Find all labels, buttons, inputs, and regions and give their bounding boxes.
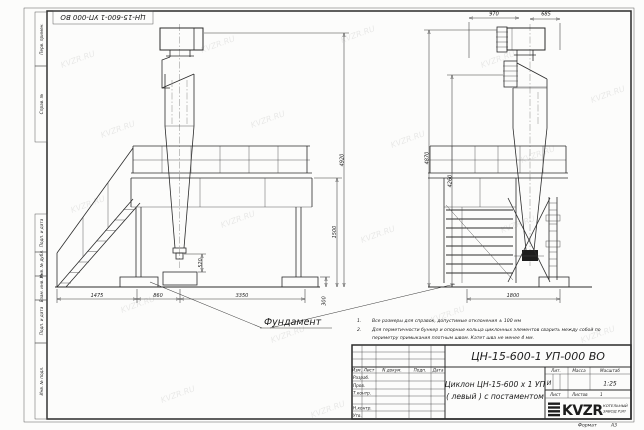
header-izm: Изм. — [352, 368, 362, 373]
top-doc-number-text: ЦН-15-600-1 УП-000 ВО — [60, 13, 146, 21]
dim-1475-label: 1475 — [91, 293, 104, 299]
dim-1500-label: 1500 — [332, 226, 338, 239]
dim-1800-label: 1800 — [507, 293, 520, 299]
header-massa: Масса — [572, 368, 586, 373]
dim-4870-label: 4870 — [425, 152, 431, 165]
header-lit: Лит. — [550, 368, 561, 373]
format-note: Формат А3 — [578, 423, 617, 429]
title-block: Изм. Лист N докум. Подп. Дата Разраб. Пр… — [352, 345, 631, 419]
cyclone-side-view — [428, 24, 592, 287]
margin-label-sprav: Справ. № — [39, 93, 44, 114]
notes-block: 1. Все размеры для справок, допустимые о… — [357, 318, 601, 341]
logo-sub-1: КОТЕЛЬНЫЙ — [603, 403, 628, 408]
margin-label-podp-data-1: Подп. и дата — [39, 218, 44, 247]
format-label: Формат — [578, 423, 597, 429]
row-tkontr: Т.контр. — [353, 391, 371, 396]
title-name-line1: Циклон ЦН-15-600 х 1 УП — [445, 380, 546, 389]
dim-300-label: 300 — [322, 296, 328, 306]
dim-3350-label: 3350 — [236, 293, 249, 299]
margin-label-vzam-inv: Взам. инв. № — [39, 273, 44, 302]
margin-stamp-column: Перв. примен. Справ. № Подп. и дата Инв.… — [35, 12, 47, 419]
margin-label-perv-primen: Перв. примен. — [39, 23, 44, 54]
row-prov: Пров. — [353, 383, 365, 388]
dim-860-label: 860 — [153, 293, 163, 299]
title-doc-number: ЦН-15-600-1 УП-000 ВО — [471, 350, 605, 363]
header-list2: Лист — [549, 392, 561, 397]
note-1-text: Все размеры для справок, допустимые откл… — [372, 318, 522, 324]
logo-text: KVZR — [562, 403, 603, 419]
margin-label-inv-podl: Инв. № подл. — [39, 367, 44, 396]
note-1-number: 1. — [357, 318, 361, 324]
header-list: Лист — [363, 368, 375, 373]
format-value: А3 — [610, 423, 617, 429]
lit-value: И — [547, 380, 552, 387]
dimension-lines: 1475 860 3350 520 4920 1500 300 4870 426… — [57, 12, 560, 306]
dim-520-label: 520 — [198, 258, 204, 268]
header-listov: Листов — [571, 392, 588, 397]
note-2-text-cont: периметру примыкания плотным швом. Катет… — [372, 335, 534, 341]
drawing-canvas: Перв. примен. Справ. № Подп. и дата Инв.… — [0, 0, 644, 430]
margin-label-podp-data-2: Подп. и дата — [39, 306, 44, 335]
note-2-number: 2. — [357, 327, 361, 333]
note-2-text: Для герметичности бункер и опорные кольц… — [371, 327, 601, 333]
top-doc-number-stamp: ЦН-15-600-1 УП-000 ВО — [53, 11, 153, 24]
title-name-line2: ( левый ) с постаментом — [446, 392, 544, 401]
row-nkontr: Н.контр. — [353, 406, 372, 411]
dim-970-label: 970 — [489, 12, 499, 18]
header-ndoc: N докум. — [382, 368, 401, 373]
header-masshtab: Масштаб — [600, 368, 620, 373]
header-data: Дата — [432, 368, 444, 373]
header-podp: Подп. — [414, 368, 427, 373]
cyclone-front-view — [55, 24, 320, 287]
foundation-label: Фундамент — [264, 317, 322, 328]
row-utv: Утв. — [353, 413, 362, 418]
kvzr-logo: KVZR КОТЕЛЬНЫЙ ЗАВОД РЭП — [548, 403, 628, 420]
drawing-sheet: Перв. примен. Справ. № Подп. и дата Инв.… — [0, 0, 644, 430]
dim-4260-label: 4260 — [448, 175, 454, 188]
logo-sub-2: ЗАВОД РЭП — [603, 409, 626, 414]
row-razrab: Разраб. — [353, 375, 369, 380]
dim-685-label: 685 — [541, 12, 551, 18]
dim-4920-label: 4920 — [340, 154, 346, 167]
scale-value: 1:25 — [603, 381, 617, 388]
listov-value: 1 — [600, 392, 603, 397]
